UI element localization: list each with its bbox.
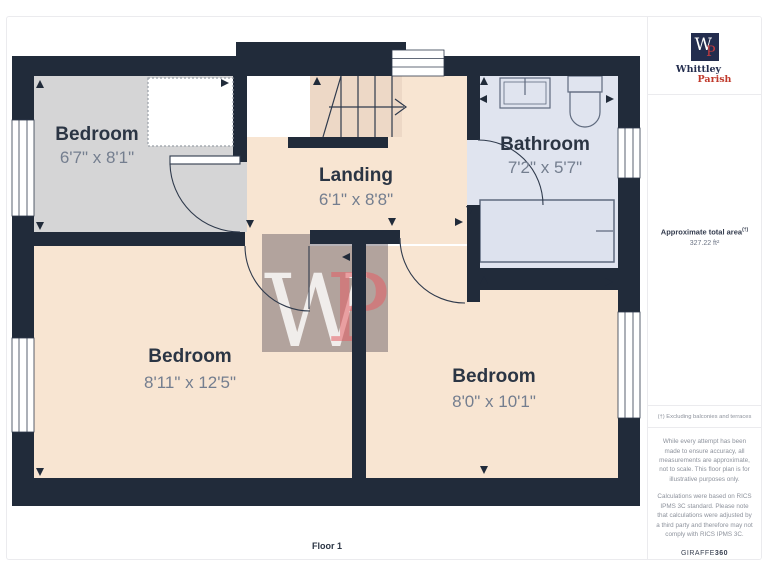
page-frame: W P xyxy=(6,16,762,560)
room-dims: 7'2" x 5'7" xyxy=(508,158,582,177)
room-name: Bedroom xyxy=(55,124,138,145)
room-dims: 8'0" x 10'1" xyxy=(452,392,536,411)
sidebar: W P Whittley Parish Approximate total ar… xyxy=(647,17,761,559)
total-area-value: 327.22 ft² xyxy=(648,240,761,247)
provider-brand: GIRAFFE360 xyxy=(655,549,754,560)
disclaimer-section: While every attempt has been made to ens… xyxy=(648,427,761,559)
window xyxy=(12,120,34,216)
disclaimer-text-2: Calculations were based on RICS IPMS 3C … xyxy=(655,492,754,539)
brand-line2: Parish xyxy=(676,75,733,85)
bathtub xyxy=(480,200,614,262)
window xyxy=(392,50,444,76)
window xyxy=(12,338,34,432)
brand-name: Whittley Parish xyxy=(676,65,733,85)
logo-letter-p: P xyxy=(706,44,715,61)
room-dims: 8'11" x 12'5" xyxy=(144,373,236,392)
room-name: Bedroom xyxy=(148,346,231,367)
room-dims: 6'7" x 8'1" xyxy=(60,148,134,167)
footnote: (†) Excluding balconies and terraces xyxy=(648,405,761,427)
area-footnote-marker: (†) xyxy=(742,227,748,233)
window xyxy=(618,312,640,418)
brand-section: W P Whittley Parish xyxy=(648,17,761,94)
disclaimer-text-1: While every attempt has been made to ens… xyxy=(655,437,754,484)
total-area-section: Approximate total area(†) 327.22 ft² xyxy=(648,94,761,405)
total-area-label: Approximate total area(†) xyxy=(648,227,761,237)
room-dims: 6'1" x 8'8" xyxy=(319,190,393,209)
room-name: Landing xyxy=(319,165,393,186)
floor-label: Floor 1 xyxy=(7,541,647,551)
watermark: W P xyxy=(262,234,390,370)
brand-logo: W P xyxy=(691,33,719,61)
window xyxy=(618,128,640,178)
dashed-storage-area xyxy=(148,78,233,146)
room-name: Bathroom xyxy=(500,134,590,155)
floorplan-svg: W P xyxy=(7,17,647,559)
floorplan-area: W P xyxy=(7,17,647,559)
room-name: Bedroom xyxy=(452,366,535,387)
